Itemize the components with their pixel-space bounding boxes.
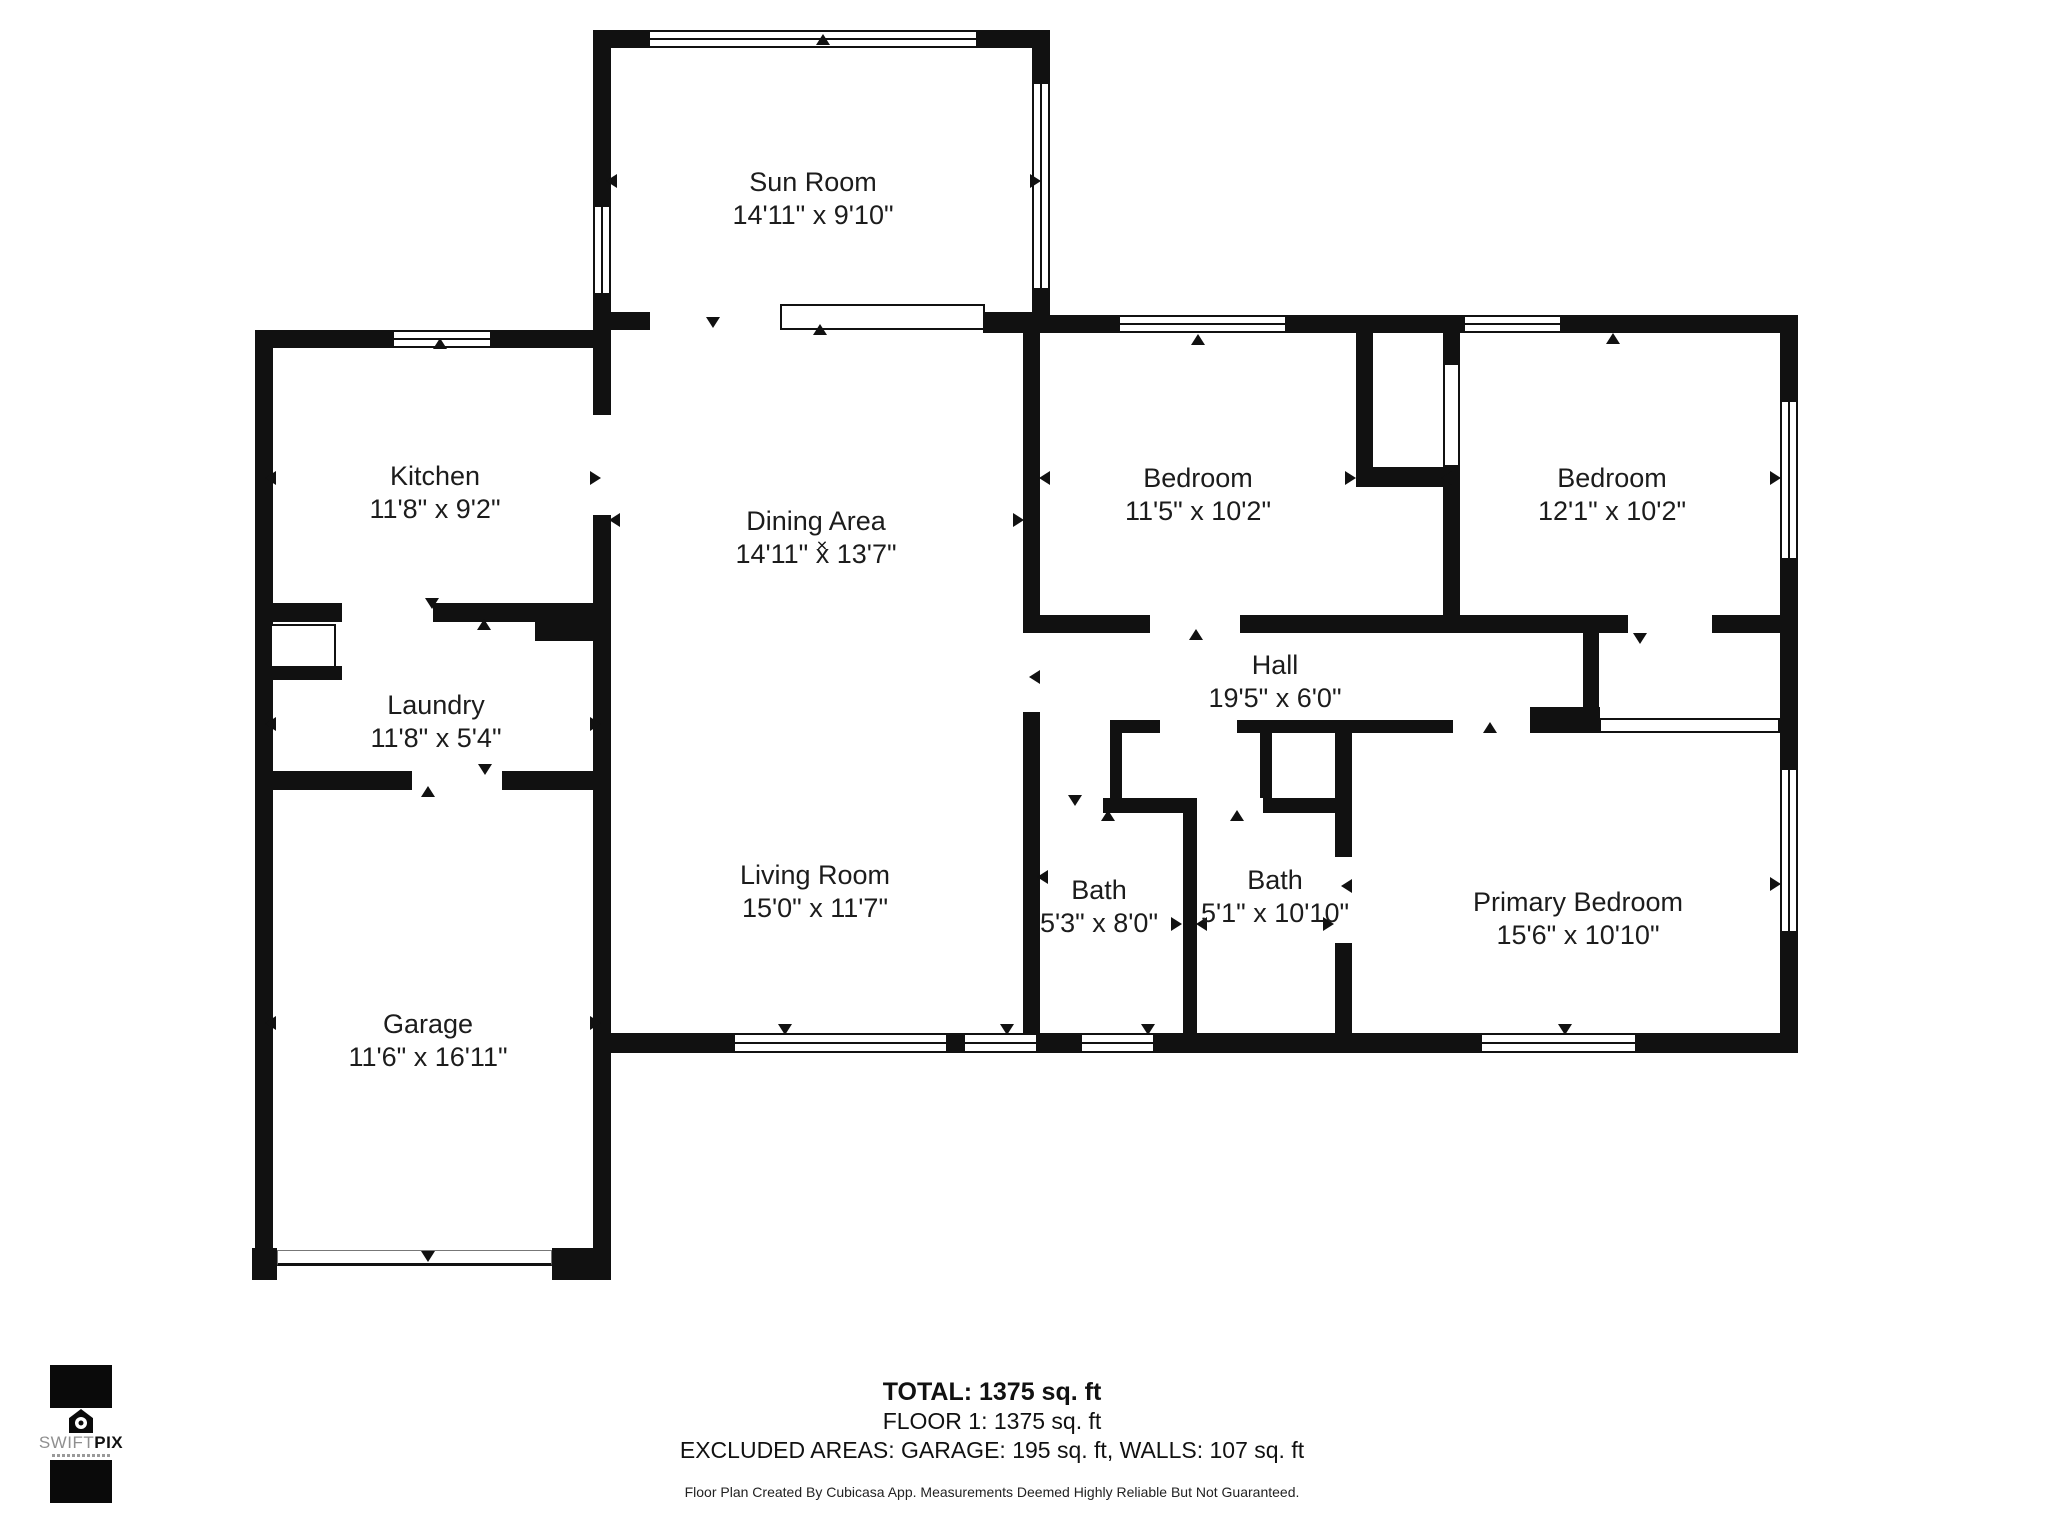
wall <box>268 771 412 790</box>
door-direction-arrow <box>590 1016 601 1030</box>
door-direction-arrow <box>706 317 720 328</box>
room-label-kitchen: Kitchen11'8" x 9'2" <box>369 460 500 526</box>
door-direction-arrow <box>1633 633 1647 644</box>
area-summary: TOTAL: 1375 sq. ft FLOOR 1: 1375 sq. ft … <box>0 1378 1984 1500</box>
wall <box>255 348 273 1280</box>
wall <box>1023 315 1040 633</box>
door-direction-arrow <box>606 174 617 188</box>
room-name: Bath <box>1201 864 1349 897</box>
floor-area-text: FLOOR 1: 1375 sq. ft <box>0 1407 1984 1436</box>
room-dimensions: 5'1" x 10'10" <box>1201 897 1349 930</box>
wall <box>593 641 611 1248</box>
wall <box>1287 315 1463 333</box>
room-dimensions: 14'11" x 13'7" <box>735 538 896 571</box>
room-name: Hall <box>1208 649 1341 682</box>
room-label-hall: Hall19'5" x 6'0" <box>1208 649 1341 715</box>
room-label-bath: Bath5'1" x 10'10" <box>1201 864 1349 930</box>
wall <box>1712 615 1780 633</box>
window <box>733 1033 948 1053</box>
room-name: Sun Room <box>732 166 893 199</box>
room-name: Garage <box>348 1008 507 1041</box>
floor-plan: ✕Sun Room14'11" x 9'10"Kitchen11'8" x 9'… <box>0 0 2048 1536</box>
wall <box>1038 1033 1080 1053</box>
window <box>1080 1033 1155 1053</box>
room-name: Kitchen <box>369 460 500 493</box>
door-direction-arrow <box>1345 471 1356 485</box>
room-dimensions: 15'0" x 11'7" <box>740 892 890 925</box>
door-direction-arrow <box>1606 333 1620 344</box>
wall <box>1335 733 1352 857</box>
wall <box>1183 813 1197 1033</box>
door-direction-arrow <box>1483 722 1497 733</box>
excluded-areas-text: EXCLUDED AREAS: GARAGE: 195 sq. ft, WALL… <box>0 1436 1984 1465</box>
door-direction-arrow <box>609 513 620 527</box>
wall <box>593 312 650 330</box>
door-direction-arrow <box>1030 174 1041 188</box>
logo-tagline-strip <box>52 1454 110 1457</box>
door-direction-arrow <box>265 471 276 485</box>
room-dimensions: 11'8" x 5'4" <box>370 722 501 755</box>
door-direction-arrow <box>1039 471 1050 485</box>
room-dimensions: 14'11" x 9'10" <box>732 199 893 232</box>
garage-door <box>277 1250 552 1266</box>
door-direction-arrow <box>1441 471 1452 485</box>
wall <box>1780 560 1798 768</box>
logo-top-block <box>50 1365 112 1408</box>
wall <box>1637 1033 1780 1053</box>
wall <box>1780 933 1798 1053</box>
wall <box>593 515 611 603</box>
window <box>1463 315 1562 333</box>
door-direction-arrow <box>590 717 601 731</box>
room-dimensions: 11'8" x 9'2" <box>369 493 500 526</box>
door-direction-arrow <box>478 764 492 775</box>
door-direction-arrow <box>1230 810 1244 821</box>
room-name: Bedroom <box>1125 462 1271 495</box>
slider-door <box>1443 363 1460 467</box>
door-direction-arrow <box>1141 1024 1155 1035</box>
door-direction-arrow <box>813 324 827 335</box>
door-direction-arrow <box>265 1016 276 1030</box>
room-name: Bedroom <box>1538 462 1686 495</box>
door-direction-arrow <box>425 598 439 609</box>
door-direction-arrow <box>816 34 830 45</box>
window <box>1780 768 1798 933</box>
wall <box>266 666 342 680</box>
wall <box>268 603 342 622</box>
room-dimensions: 15'6" x 10'10" <box>1473 919 1683 952</box>
door-direction-arrow <box>421 1251 435 1262</box>
room-name: Living Room <box>740 859 890 892</box>
wall <box>1335 943 1352 1033</box>
room-name: Laundry <box>370 689 501 722</box>
door-direction-arrow <box>590 471 601 485</box>
door-direction-arrow <box>1068 795 1082 806</box>
door-direction-arrow <box>1770 471 1781 485</box>
wall <box>552 1248 611 1280</box>
logo-word-bold: PIX <box>94 1433 123 1452</box>
wall <box>1583 633 1599 713</box>
window <box>1118 315 1287 333</box>
room-label-living-room: Living Room15'0" x 11'7" <box>740 859 890 925</box>
logo-wordmark: SWIFTPIX <box>35 1433 127 1452</box>
disclaimer-text: Floor Plan Created By Cubicasa App. Meas… <box>0 1484 1984 1500</box>
room-label-bath: Bath5'3" x 8'0" <box>1040 874 1158 940</box>
window <box>648 30 978 48</box>
door-direction-arrow <box>433 338 447 349</box>
door-direction-arrow <box>1101 810 1115 821</box>
wall <box>593 1033 733 1053</box>
wall <box>1443 333 1460 363</box>
room-label-dining-area: Dining Area14'11" x 13'7" <box>735 505 896 571</box>
alcove-door <box>270 624 336 668</box>
wall <box>1263 798 1335 813</box>
room-dimensions: 11'6" x 16'11" <box>348 1041 507 1074</box>
room-dimensions: 19'5" x 6'0" <box>1208 682 1341 715</box>
swiftpix-logo: SWIFTPIX <box>35 1365 127 1503</box>
room-dimensions: 11'5" x 10'2" <box>1125 495 1271 528</box>
slider-door <box>780 304 985 330</box>
door-direction-arrow <box>1171 917 1182 931</box>
window <box>963 1033 1038 1053</box>
door-direction-arrow <box>1013 513 1024 527</box>
door-direction-arrow <box>1189 629 1203 640</box>
room-dimensions: 12'1" x 10'2" <box>1538 495 1686 528</box>
house-camera-icon <box>69 1409 93 1433</box>
wall <box>1040 615 1150 633</box>
total-area-text: TOTAL: 1375 sq. ft <box>0 1378 1984 1407</box>
camera-lens-icon <box>75 1417 87 1429</box>
door-direction-arrow <box>1000 1024 1014 1035</box>
wall <box>1240 615 1628 633</box>
wall <box>1155 1033 1480 1053</box>
room-label-bedroom: Bedroom11'5" x 10'2" <box>1125 462 1271 528</box>
wall <box>1260 722 1272 798</box>
room-name: Primary Bedroom <box>1473 886 1683 919</box>
floor-plan-page: ✕Sun Room14'11" x 9'10"Kitchen11'8" x 9'… <box>0 0 2048 1536</box>
door-direction-arrow <box>265 717 276 731</box>
wall <box>1443 487 1460 633</box>
door-direction-arrow <box>1770 877 1781 891</box>
wall <box>1356 333 1373 467</box>
wall <box>948 1033 963 1053</box>
wall <box>1780 333 1798 400</box>
door-direction-arrow <box>1191 334 1205 345</box>
room-label-primary-bedroom: Primary Bedroom15'6" x 10'10" <box>1473 886 1683 952</box>
wall <box>255 330 392 348</box>
room-dimensions: 5'3" x 8'0" <box>1040 907 1158 940</box>
wall <box>1562 315 1798 333</box>
window <box>593 205 611 295</box>
wall <box>1050 315 1118 333</box>
room-label-sun-room: Sun Room14'11" x 9'10" <box>732 166 893 232</box>
door-direction-arrow <box>477 619 491 630</box>
wall <box>1103 798 1197 813</box>
room-label-laundry: Laundry11'8" x 5'4" <box>370 689 501 755</box>
room-label-garage: Garage11'6" x 16'11" <box>348 1008 507 1074</box>
wall <box>593 30 648 48</box>
room-name: Dining Area <box>735 505 896 538</box>
logo-word-light: SWIFT <box>39 1433 94 1452</box>
window <box>1780 400 1798 560</box>
door-direction-arrow <box>1558 1024 1572 1035</box>
door-direction-arrow <box>778 1024 792 1035</box>
logo-bottom-block <box>50 1460 112 1503</box>
door-direction-arrow <box>421 786 435 797</box>
room-name: Bath <box>1040 874 1158 907</box>
wall <box>1032 30 1050 82</box>
slider-door <box>1599 718 1780 733</box>
wall <box>535 603 611 641</box>
room-label-bedroom: Bedroom12'1" x 10'2" <box>1538 462 1686 528</box>
wall <box>252 1248 277 1280</box>
window <box>1480 1033 1637 1053</box>
door-direction-arrow <box>1029 670 1040 684</box>
wall <box>593 330 611 415</box>
